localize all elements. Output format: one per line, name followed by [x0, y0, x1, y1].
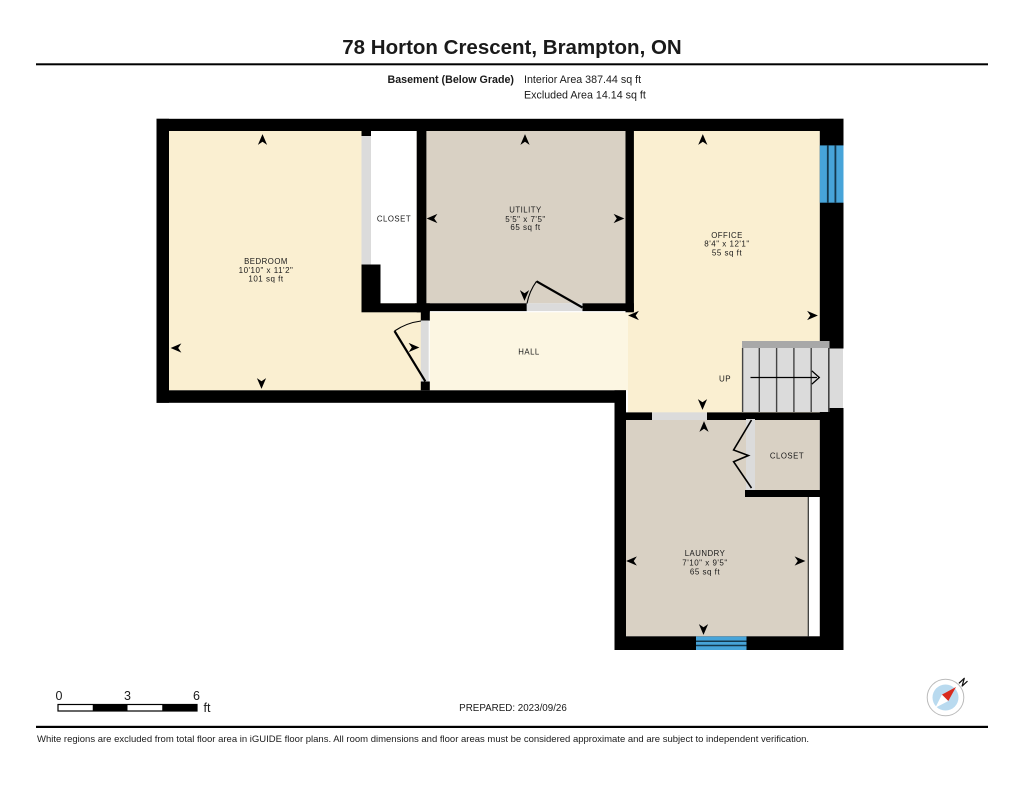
svg-text:ft: ft: [204, 701, 211, 715]
svg-text:65 sq ft: 65 sq ft: [510, 223, 541, 232]
svg-text:78 Horton Crescent, Brampton,: 78 Horton Crescent, Brampton, ON: [342, 36, 681, 59]
svg-text:7'10" x 9'5": 7'10" x 9'5": [682, 559, 727, 568]
svg-text:CLOSET: CLOSET: [770, 452, 804, 461]
svg-text:HALL: HALL: [518, 348, 540, 357]
svg-text:Excluded Area 14.14 sq ft: Excluded Area 14.14 sq ft: [524, 90, 646, 102]
svg-text:8'4" x 12'1": 8'4" x 12'1": [704, 240, 749, 249]
svg-text:UP: UP: [719, 375, 731, 384]
svg-text:White regions are excluded fro: White regions are excluded from total fl…: [37, 734, 809, 745]
svg-text:3: 3: [124, 689, 131, 703]
svg-text:6: 6: [193, 689, 200, 703]
svg-text:101 sq ft: 101 sq ft: [248, 275, 283, 284]
svg-text:Interior Area 387.44 sq ft: Interior Area 387.44 sq ft: [524, 74, 641, 86]
svg-text:55 sq ft: 55 sq ft: [712, 249, 743, 258]
svg-text:BEDROOM: BEDROOM: [244, 257, 288, 266]
svg-text:CLOSET: CLOSET: [377, 215, 411, 224]
svg-text:65 sq ft: 65 sq ft: [690, 568, 721, 577]
svg-text:UTILITY: UTILITY: [509, 206, 542, 215]
svg-text:0: 0: [56, 689, 63, 703]
svg-text:LAUNDRY: LAUNDRY: [685, 549, 726, 558]
svg-text:PREPARED: 2023/09/26: PREPARED: 2023/09/26: [459, 703, 567, 714]
svg-text:Basement (Below Grade): Basement (Below Grade): [387, 74, 514, 86]
